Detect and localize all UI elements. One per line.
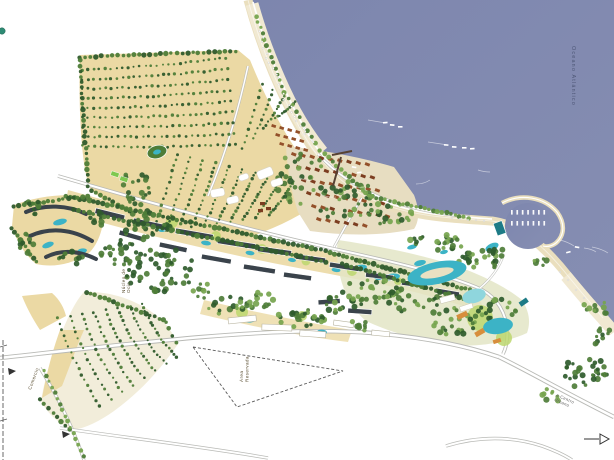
tree — [276, 312, 282, 318]
tree — [171, 104, 173, 106]
tree — [164, 321, 167, 324]
boat — [533, 210, 535, 215]
tree — [270, 297, 276, 303]
road — [446, 439, 572, 460]
tree — [109, 68, 111, 70]
tree — [228, 143, 231, 146]
tree — [279, 115, 281, 117]
tree — [308, 175, 312, 179]
tree — [437, 329, 443, 335]
tree — [313, 247, 318, 252]
tree — [350, 319, 355, 324]
tree — [216, 222, 218, 224]
tree — [301, 122, 306, 127]
tree — [199, 92, 202, 95]
tree — [190, 124, 193, 127]
tree — [279, 101, 282, 104]
tree — [449, 212, 453, 216]
tree — [122, 76, 124, 78]
tree — [224, 100, 226, 102]
tree — [344, 263, 350, 269]
tree — [33, 212, 38, 217]
tree — [36, 200, 41, 205]
tree — [112, 353, 115, 356]
tree — [42, 200, 47, 205]
tree — [156, 65, 158, 67]
tree — [93, 136, 95, 138]
tree — [363, 190, 368, 195]
arrow-head — [600, 434, 609, 444]
tree — [100, 146, 102, 148]
tree — [133, 66, 135, 68]
tree — [337, 198, 341, 202]
tree — [220, 238, 225, 243]
tree — [165, 363, 167, 365]
boat — [470, 148, 475, 150]
tree — [254, 172, 256, 174]
tree — [73, 327, 75, 329]
tree — [122, 95, 125, 98]
tree — [312, 314, 318, 320]
tree — [319, 164, 323, 168]
tree — [112, 327, 115, 330]
tree — [433, 297, 437, 301]
tree — [168, 181, 171, 184]
tree — [191, 144, 194, 147]
tree — [144, 336, 147, 339]
tree — [119, 366, 122, 369]
apartment-block — [201, 254, 231, 264]
tree — [122, 106, 125, 109]
tree — [170, 176, 173, 179]
tree — [205, 91, 208, 94]
tree — [76, 255, 82, 261]
tree — [429, 287, 433, 291]
tree — [325, 208, 329, 212]
tree — [152, 114, 155, 117]
tree — [209, 211, 212, 214]
tree — [181, 93, 184, 96]
tree — [94, 191, 98, 195]
tree — [109, 323, 112, 326]
tree — [444, 210, 449, 215]
tree — [186, 51, 191, 56]
tree — [210, 175, 213, 178]
tree — [286, 108, 289, 111]
tree — [251, 177, 254, 180]
tree — [158, 51, 163, 56]
tree — [600, 333, 604, 337]
tree — [91, 212, 95, 216]
tree — [196, 295, 199, 298]
tree — [80, 107, 85, 112]
tree — [240, 172, 242, 174]
tree — [145, 65, 147, 67]
tree — [346, 179, 351, 184]
tree — [86, 178, 90, 182]
tree — [86, 173, 90, 177]
tree — [343, 171, 348, 176]
tree — [127, 87, 130, 90]
tree — [152, 105, 154, 107]
beach-umbrella — [272, 68, 274, 70]
tree — [270, 193, 273, 196]
tree — [75, 196, 79, 200]
tree — [199, 282, 202, 285]
tree — [150, 224, 156, 230]
tree — [212, 203, 214, 205]
tree — [224, 111, 227, 114]
tree — [256, 20, 260, 24]
tree — [185, 232, 189, 236]
boat — [538, 210, 540, 215]
tree — [86, 384, 89, 387]
tree — [418, 205, 422, 209]
tree — [427, 208, 430, 211]
tree — [205, 282, 210, 287]
boat — [538, 221, 540, 226]
tree — [80, 102, 84, 106]
boat — [522, 221, 524, 226]
tree — [366, 261, 370, 265]
tree — [347, 174, 352, 179]
tree — [71, 207, 76, 212]
tree — [130, 197, 133, 200]
tree — [187, 203, 190, 206]
tree — [221, 133, 224, 136]
apartment-block — [243, 264, 275, 274]
tree — [173, 63, 175, 65]
tree — [262, 237, 266, 241]
tree — [114, 332, 117, 335]
tree — [219, 296, 225, 302]
tree — [18, 246, 22, 250]
tree — [374, 280, 379, 285]
tree — [248, 209, 250, 211]
tree — [396, 305, 402, 311]
tree — [153, 136, 155, 138]
tree — [137, 52, 141, 56]
tree — [183, 266, 188, 271]
tree — [131, 270, 137, 276]
tree — [207, 58, 210, 61]
tree — [121, 303, 125, 307]
tree — [107, 394, 110, 397]
tree — [456, 294, 462, 300]
tree — [211, 102, 213, 104]
tree — [164, 115, 167, 118]
tree — [572, 370, 578, 376]
tree — [163, 51, 168, 56]
tree — [360, 286, 364, 290]
tree — [92, 369, 94, 371]
tree — [184, 172, 187, 175]
tree — [487, 307, 493, 313]
tree — [85, 152, 88, 155]
tree — [165, 260, 169, 264]
tree — [369, 194, 374, 199]
marina-basin — [505, 203, 551, 249]
beach-umbrella — [304, 130, 306, 132]
tree — [402, 269, 408, 275]
map-continuation-arrow — [584, 434, 609, 444]
tree — [60, 408, 64, 412]
tree — [326, 307, 332, 313]
tree — [134, 307, 138, 311]
tree — [63, 334, 66, 337]
tree — [47, 380, 50, 383]
tree — [196, 212, 198, 214]
tree — [244, 141, 246, 143]
tree — [137, 275, 143, 281]
tree — [459, 244, 463, 248]
tree — [454, 330, 460, 336]
tree — [53, 390, 57, 394]
tree — [500, 247, 506, 253]
road-direction-arrow — [8, 368, 16, 375]
tree — [58, 419, 63, 424]
tree — [119, 339, 122, 342]
tree — [150, 84, 153, 87]
tree — [84, 161, 89, 166]
village-house — [287, 128, 292, 132]
tree — [32, 208, 36, 212]
tree — [223, 49, 228, 54]
tree — [461, 215, 465, 219]
site-plan-drawing: Oceano Atlántico Área Reservada Comercio… — [0, 0, 614, 460]
tree — [130, 146, 133, 149]
tree — [473, 314, 478, 319]
tree — [471, 326, 475, 330]
tree — [58, 402, 62, 406]
tree — [164, 85, 166, 87]
tree — [202, 70, 205, 73]
tree — [366, 184, 370, 188]
tree — [257, 213, 259, 215]
tree — [280, 85, 284, 89]
tree — [141, 303, 143, 305]
tree — [117, 146, 120, 149]
tree — [499, 253, 505, 259]
tree — [597, 328, 603, 334]
tree — [159, 281, 165, 287]
tree — [254, 133, 256, 135]
tree — [175, 159, 178, 162]
tree — [389, 289, 395, 295]
tree — [283, 156, 288, 161]
tree — [117, 97, 119, 99]
tree — [245, 188, 248, 191]
beach-umbrella — [559, 271, 561, 273]
tree — [215, 79, 218, 82]
tree — [188, 92, 190, 94]
tree — [138, 75, 140, 77]
tree — [60, 328, 63, 331]
beach-umbrella — [278, 83, 280, 85]
tree — [89, 292, 93, 296]
tree — [238, 203, 240, 205]
tree — [249, 121, 252, 124]
tree — [156, 354, 159, 357]
tree — [148, 126, 150, 128]
tree — [221, 210, 224, 213]
tree — [90, 338, 93, 341]
tree — [582, 302, 587, 307]
tree — [350, 179, 355, 184]
tree — [92, 107, 95, 110]
tree — [31, 256, 36, 261]
tree — [99, 87, 101, 89]
tree — [148, 343, 151, 346]
tree — [182, 213, 185, 216]
tree — [216, 143, 219, 146]
tree — [86, 117, 88, 119]
tree — [204, 81, 207, 84]
tree — [113, 257, 117, 261]
tree — [89, 390, 92, 393]
tree — [56, 397, 59, 400]
tree — [106, 313, 109, 316]
tree — [122, 54, 126, 58]
tree — [123, 117, 125, 119]
tree — [210, 90, 213, 93]
tree — [108, 348, 111, 351]
tree — [197, 70, 200, 73]
tree — [97, 353, 100, 356]
tree — [274, 207, 277, 210]
tree — [357, 202, 360, 205]
tree — [286, 241, 291, 246]
tree — [241, 147, 244, 150]
tree — [139, 95, 142, 98]
tree — [296, 243, 300, 247]
tree — [83, 318, 86, 321]
tree — [376, 264, 380, 268]
tree — [179, 188, 181, 190]
tree — [435, 209, 440, 214]
tree — [572, 383, 578, 389]
tree — [231, 110, 234, 113]
tree — [179, 145, 182, 148]
boat — [511, 210, 513, 215]
tree — [109, 87, 112, 90]
tree — [80, 92, 83, 95]
tree — [98, 126, 100, 128]
tree — [192, 189, 195, 192]
reserved-area — [193, 347, 343, 407]
tree — [226, 78, 229, 81]
tree — [276, 108, 278, 110]
tree — [207, 122, 210, 125]
tree — [226, 169, 228, 171]
tree — [128, 96, 131, 99]
tree — [244, 303, 249, 308]
tree — [474, 258, 478, 262]
tree — [98, 135, 101, 138]
tree — [137, 324, 139, 326]
tree — [160, 338, 162, 340]
tree — [545, 387, 549, 391]
tree — [133, 340, 135, 342]
beach-umbrella — [291, 111, 293, 113]
tree — [105, 308, 108, 311]
tree — [121, 345, 124, 348]
tree — [99, 222, 105, 228]
tree — [234, 143, 237, 146]
tree — [79, 448, 83, 452]
tree — [206, 215, 208, 217]
tree — [147, 135, 150, 138]
tree — [97, 378, 99, 380]
tree — [101, 384, 103, 386]
tree — [189, 156, 191, 158]
tree — [205, 189, 208, 192]
tree — [195, 124, 197, 126]
tree — [191, 288, 196, 293]
tree — [269, 197, 271, 199]
tree — [156, 226, 160, 230]
tree — [99, 97, 101, 99]
tree — [76, 208, 81, 213]
tree — [593, 341, 599, 347]
tree — [93, 116, 95, 118]
tree — [166, 326, 171, 331]
tree — [507, 301, 511, 305]
tree — [142, 355, 145, 358]
tree — [210, 236, 214, 240]
tree — [445, 282, 450, 287]
tree — [117, 362, 120, 365]
tree — [226, 67, 229, 70]
tree — [357, 258, 362, 263]
tree — [108, 319, 111, 322]
tree — [157, 95, 160, 98]
tree — [129, 135, 132, 138]
tree — [218, 101, 221, 104]
tree — [215, 133, 218, 136]
tree — [195, 113, 198, 116]
tree — [471, 321, 475, 325]
tree — [178, 134, 181, 137]
tree — [263, 114, 265, 116]
tree — [207, 185, 210, 188]
tree — [418, 236, 423, 241]
tree — [159, 209, 162, 212]
tree — [602, 372, 607, 377]
tree — [182, 177, 184, 179]
tree — [350, 256, 354, 260]
tree — [352, 207, 358, 213]
tree — [388, 266, 394, 272]
tree — [217, 225, 222, 230]
tree — [91, 199, 96, 204]
tree — [202, 200, 204, 202]
tree — [246, 135, 248, 137]
tree — [277, 202, 280, 205]
tree — [343, 209, 347, 213]
tree — [44, 374, 49, 379]
tree — [255, 290, 260, 295]
tree — [596, 367, 600, 371]
tree — [146, 95, 149, 98]
tree — [513, 309, 518, 314]
tree — [173, 135, 176, 138]
tree — [186, 167, 188, 169]
tree — [161, 136, 163, 138]
tree — [198, 81, 201, 84]
tree — [180, 230, 184, 234]
beach-umbrella — [313, 141, 315, 143]
